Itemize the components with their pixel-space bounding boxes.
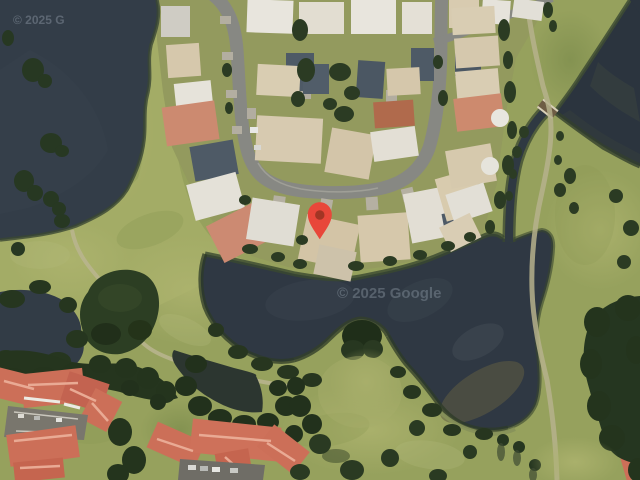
svg-text:© 2025 G: © 2025 G xyxy=(13,13,65,27)
svg-text:© 2025 Google: © 2025 Google xyxy=(337,285,441,302)
